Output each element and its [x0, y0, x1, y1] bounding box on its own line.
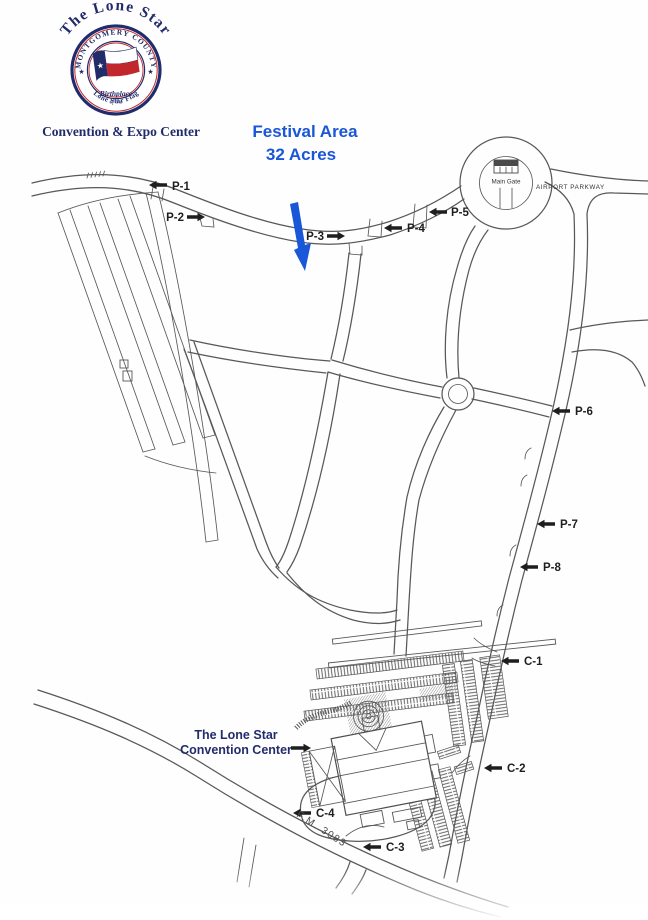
festival-area-title: Festival Area — [252, 122, 358, 141]
festival-area-annotation: Festival Area 32 Acres — [252, 122, 358, 271]
main-gate-building-icon — [494, 160, 518, 173]
gate-label-p2: P-2 — [166, 212, 184, 224]
seal-birthplace-text: Birthplace — [99, 89, 133, 98]
seal-star-left-icon: ★ — [78, 68, 84, 76]
central-roundabout — [442, 378, 474, 410]
airport-parkway-label: AIRPORT PARKWAY — [536, 184, 605, 191]
gate-label-c3: C-3 — [386, 842, 405, 854]
gate-label-p1: P-1 — [172, 181, 191, 193]
gate-label-c4: C-4 — [316, 808, 335, 820]
cc-pointer-arrow — [291, 744, 311, 752]
convention-center-annotation: The Lone Star Convention Center — [180, 728, 311, 757]
gate-arrow-p3 — [327, 232, 345, 240]
gate-arrow-p7 — [537, 520, 555, 528]
svg-text:★: ★ — [96, 61, 104, 71]
gate-label-p8: P-8 — [543, 562, 562, 574]
festival-area-subtitle: 32 Acres — [266, 145, 336, 164]
gate-label-p7: P-7 — [560, 519, 578, 531]
seal-star-right-icon: ★ — [147, 68, 153, 76]
gate-label-p3: P-3 — [306, 231, 324, 243]
gate-arrow-p4 — [384, 224, 402, 232]
gate-arrow-c3 — [363, 843, 381, 851]
logo-tagline: Convention & Expo Center — [42, 124, 200, 139]
cc-label-line2: Convention Center — [180, 743, 292, 757]
gate-label-c2: C-2 — [507, 763, 526, 775]
main-gate-label: Main Gate — [491, 179, 521, 186]
logo: The Lone Star MONTGOMERY COUNTY Lone Sta… — [42, 0, 200, 139]
main-hall — [331, 721, 436, 815]
gate-label-p4: P-4 — [407, 223, 426, 235]
gate-label-p5: P-5 — [451, 207, 470, 219]
scan-fade — [0, 868, 648, 920]
site-map-page: Main Gate AIRPORT PARKWAY — [0, 0, 648, 920]
parking-strips-nw — [58, 192, 218, 542]
north-parking-lot — [304, 621, 556, 721]
main-gate-roundabout: Main Gate — [460, 137, 552, 229]
gate-label-c1: C-1 — [524, 656, 543, 668]
road-network — [32, 169, 648, 917]
gate-arrow-p6 — [552, 407, 570, 415]
gate-arrow-p8 — [520, 563, 538, 571]
cc-label-line1: The Lone Star — [194, 728, 277, 742]
gate-label-p6: P-6 — [575, 406, 593, 418]
seal-ofthe-text: of the — [109, 99, 122, 106]
map-canvas: Main Gate AIRPORT PARKWAY — [0, 0, 648, 920]
gate-arrow-c2 — [484, 764, 502, 772]
